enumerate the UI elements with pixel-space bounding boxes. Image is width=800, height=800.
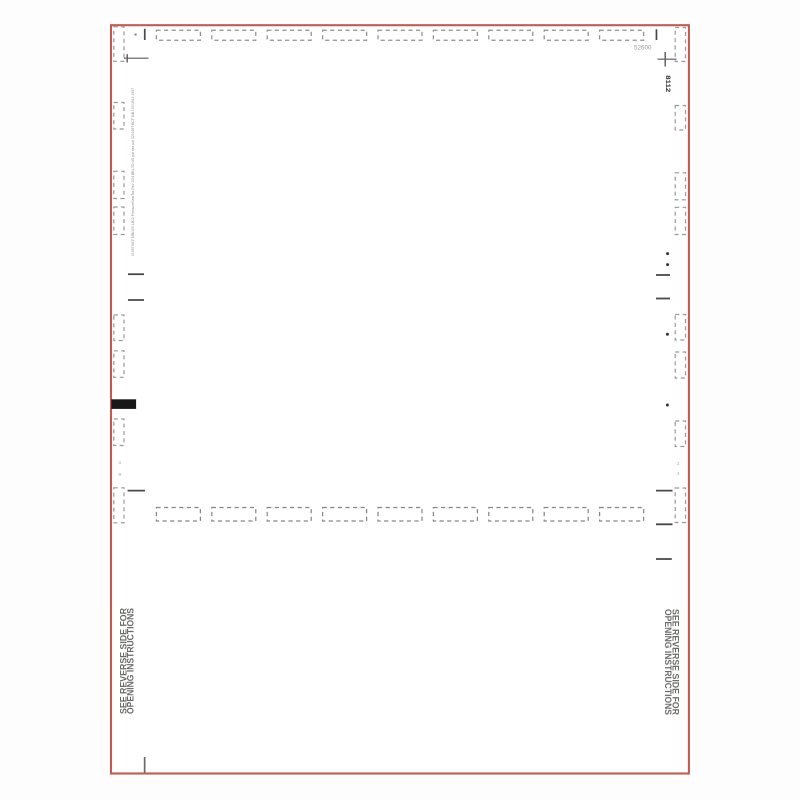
svg-text:8112: 8112 (664, 75, 671, 93)
svg-text:01997 BCF MB/100 LB12 Pressure: 01997 BCF MB/100 LB12 PressureSealTax Re… (131, 88, 135, 256)
svg-text:52600: 52600 (634, 45, 652, 52)
svg-text:OPENING INSTRUCTIONS: OPENING INSTRUCTIONS (126, 608, 136, 714)
svg-text:OPENING INSTRUCTIONS: OPENING INSTRUCTIONS (663, 609, 673, 715)
